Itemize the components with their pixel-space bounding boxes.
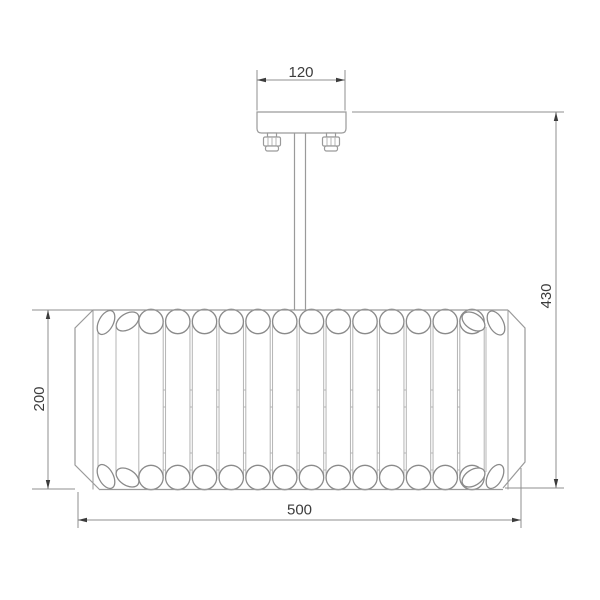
dimension-canopy-width: 120	[257, 64, 345, 111]
tube-bottom-cap	[192, 465, 216, 489]
mounting-screw-left	[264, 133, 281, 151]
shade-left-panel	[75, 310, 100, 490]
tube-top-cap	[380, 309, 404, 333]
tube-bottom-cap	[273, 465, 297, 489]
dim-arrow-bottom	[46, 480, 50, 489]
tube-top-cap	[353, 309, 377, 333]
dim-label-shade-height: 200	[31, 386, 48, 411]
dim-label-overall-height: 430	[538, 283, 555, 308]
tube-top-cap	[299, 309, 323, 333]
dim-arrow-top	[46, 310, 50, 319]
tube-top-cap	[433, 309, 457, 333]
tube-top-cap	[192, 309, 216, 333]
dim-arrow-left	[257, 78, 266, 82]
technical-drawing: 120 430 200 500	[0, 0, 600, 600]
shade-right-panel	[503, 310, 525, 490]
tube-bottom-cap	[139, 465, 163, 489]
edge-tube-cap-bottom-left-inner	[113, 464, 143, 491]
dim-arrow-right	[336, 78, 345, 82]
canopy-plate	[257, 112, 346, 133]
mounting-screw-right	[323, 133, 340, 151]
screw-base	[266, 146, 279, 151]
dimension-shade-height: 200	[31, 310, 93, 489]
edge-tube-side-lines	[98, 327, 486, 472]
shade	[75, 308, 525, 492]
crystal-tubes	[139, 309, 484, 489]
tube-bottom-cap	[219, 465, 243, 489]
dim-label-shade-width: 500	[287, 502, 312, 519]
tube-top-cap	[166, 309, 190, 333]
tube-top-cap	[139, 309, 163, 333]
edge-tube-cap-top-left-inner	[113, 308, 143, 335]
tube-bottom-cap	[433, 465, 457, 489]
tube-top-cap	[406, 309, 430, 333]
dim-arrow-right	[512, 518, 521, 522]
screw-base	[325, 146, 338, 151]
stem-rod	[295, 133, 306, 310]
edge-tube-cap-top-right-outer	[484, 308, 509, 338]
tube-top-cap	[246, 309, 270, 333]
canopy	[257, 112, 346, 310]
dim-arrow-left	[78, 518, 87, 522]
tube-bottom-cap	[326, 465, 350, 489]
tube-bottom-cap	[299, 465, 323, 489]
edge-tube-caps	[94, 308, 509, 492]
shade-left-panel-outline	[75, 310, 100, 490]
tube-bottom-cap	[353, 465, 377, 489]
tube-bottom-cap	[166, 465, 190, 489]
dim-label-canopy-width: 120	[288, 64, 313, 81]
tube-bottom-cap	[380, 465, 404, 489]
shade-right-panel-outline	[503, 310, 525, 488]
tube-top-cap	[273, 309, 297, 333]
tube-top-cap	[326, 309, 350, 333]
dimension-overall-height: 430	[352, 112, 564, 488]
tube-bottom-cap	[246, 465, 270, 489]
edge-tube-cap-top-left-outer	[94, 308, 119, 338]
tube-top-cap	[219, 309, 243, 333]
dim-arrow-bottom	[554, 479, 558, 488]
tube-bottom-cap	[406, 465, 430, 489]
dim-arrow-top	[554, 112, 558, 121]
